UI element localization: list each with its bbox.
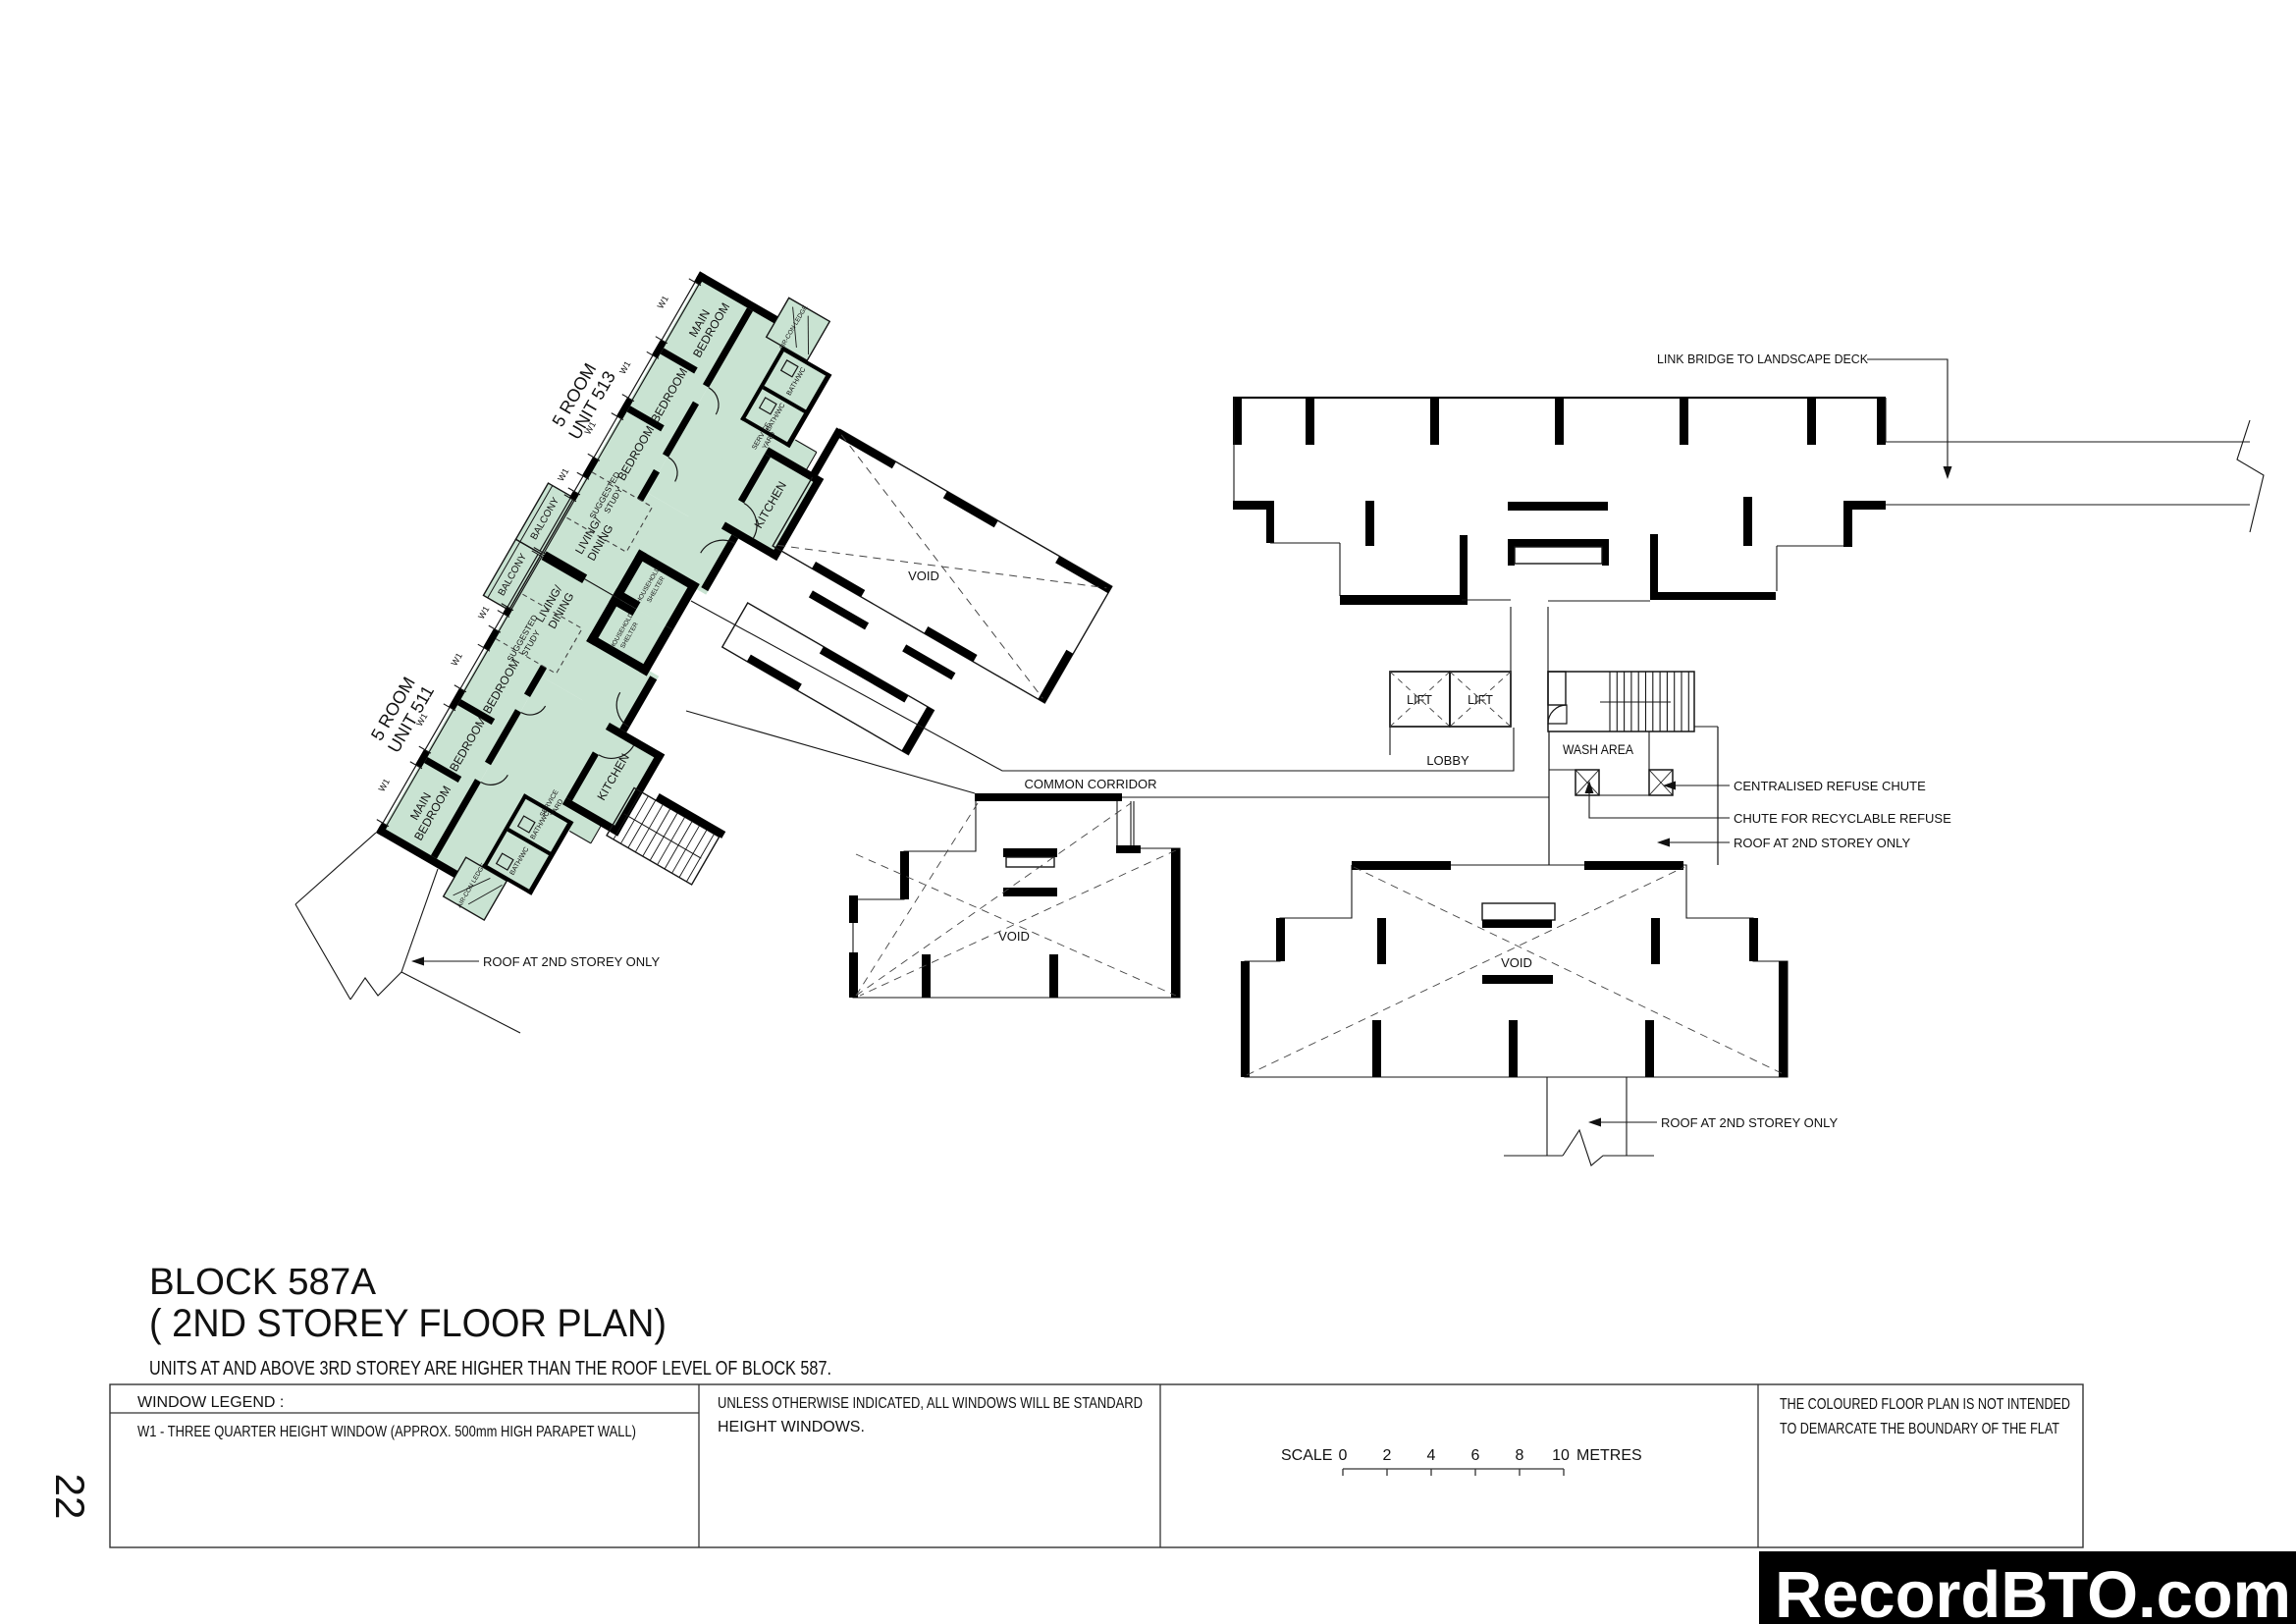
svg-text:VOID: VOID xyxy=(1501,955,1532,970)
svg-text:TO DEMARCATE THE BOUNDARY OF T: TO DEMARCATE THE BOUNDARY OF THE FLAT xyxy=(1780,1421,2059,1437)
svg-text:ROOF AT 2ND STOREY ONLY: ROOF AT 2ND STOREY ONLY xyxy=(1661,1115,1838,1130)
svg-text:ROOF AT 2ND STOREY ONLY: ROOF AT 2ND STOREY ONLY xyxy=(1734,836,1910,850)
svg-text:SCALE: SCALE xyxy=(1281,1447,1332,1464)
svg-text:VOID: VOID xyxy=(998,929,1030,944)
svg-text:6: 6 xyxy=(1471,1447,1480,1464)
svg-text:8: 8 xyxy=(1516,1447,1524,1464)
svg-text:4: 4 xyxy=(1427,1447,1436,1464)
svg-text:COMMON CORRIDOR: COMMON CORRIDOR xyxy=(1024,777,1156,791)
svg-text:VOID: VOID xyxy=(908,568,939,583)
svg-text:HEIGHT WINDOWS.: HEIGHT WINDOWS. xyxy=(718,1419,865,1435)
svg-text:WASH AREA: WASH AREA xyxy=(1563,742,1633,757)
svg-text:METRES: METRES xyxy=(1576,1447,1642,1464)
svg-text:ROOF AT 2ND STOREY ONLY: ROOF AT 2ND STOREY ONLY xyxy=(483,954,660,969)
svg-text:0: 0 xyxy=(1339,1447,1348,1464)
svg-text:22: 22 xyxy=(47,1474,93,1520)
svg-text:BLOCK 587A: BLOCK 587A xyxy=(149,1262,377,1303)
svg-text:LOBBY: LOBBY xyxy=(1426,753,1469,768)
svg-text:THE COLOURED FLOOR PLAN IS NOT: THE COLOURED FLOOR PLAN IS NOT INTENDED xyxy=(1780,1396,2070,1413)
svg-text:RecordBTO.com: RecordBTO.com xyxy=(1775,1558,2291,1624)
svg-text:LIFT: LIFT xyxy=(1468,693,1493,707)
svg-text:W1 - THREE QUARTER HEIGHT WIN: W1 - THREE QUARTER HEIGHT WINDOW (APPROX… xyxy=(137,1424,636,1440)
svg-text:CENTRALISED REFUSE CHUTE: CENTRALISED REFUSE CHUTE xyxy=(1734,779,1926,793)
svg-text:2: 2 xyxy=(1383,1447,1392,1464)
svg-text:( 2ND STOREY FLOOR PLAN): ( 2ND STOREY FLOOR PLAN) xyxy=(149,1302,667,1345)
svg-text:10: 10 xyxy=(1552,1447,1570,1464)
svg-text:UNITS AT AND ABOVE 3RD STOREY: UNITS AT AND ABOVE 3RD STOREY ARE HIGHER… xyxy=(149,1358,831,1380)
svg-text:UNLESS OTHERWISE INDICATED, AL: UNLESS OTHERWISE INDICATED, ALL WINDOWS … xyxy=(718,1395,1143,1412)
svg-text:CHUTE FOR RECYCLABLE REFUSE: CHUTE FOR RECYCLABLE REFUSE xyxy=(1734,811,1951,826)
svg-text:LIFT: LIFT xyxy=(1407,693,1432,707)
svg-text:WINDOW LEGEND :: WINDOW LEGEND : xyxy=(137,1394,284,1411)
svg-text:LINK BRIDGE TO LANDSCAPE DECK: LINK BRIDGE TO LANDSCAPE DECK xyxy=(1657,352,1868,366)
